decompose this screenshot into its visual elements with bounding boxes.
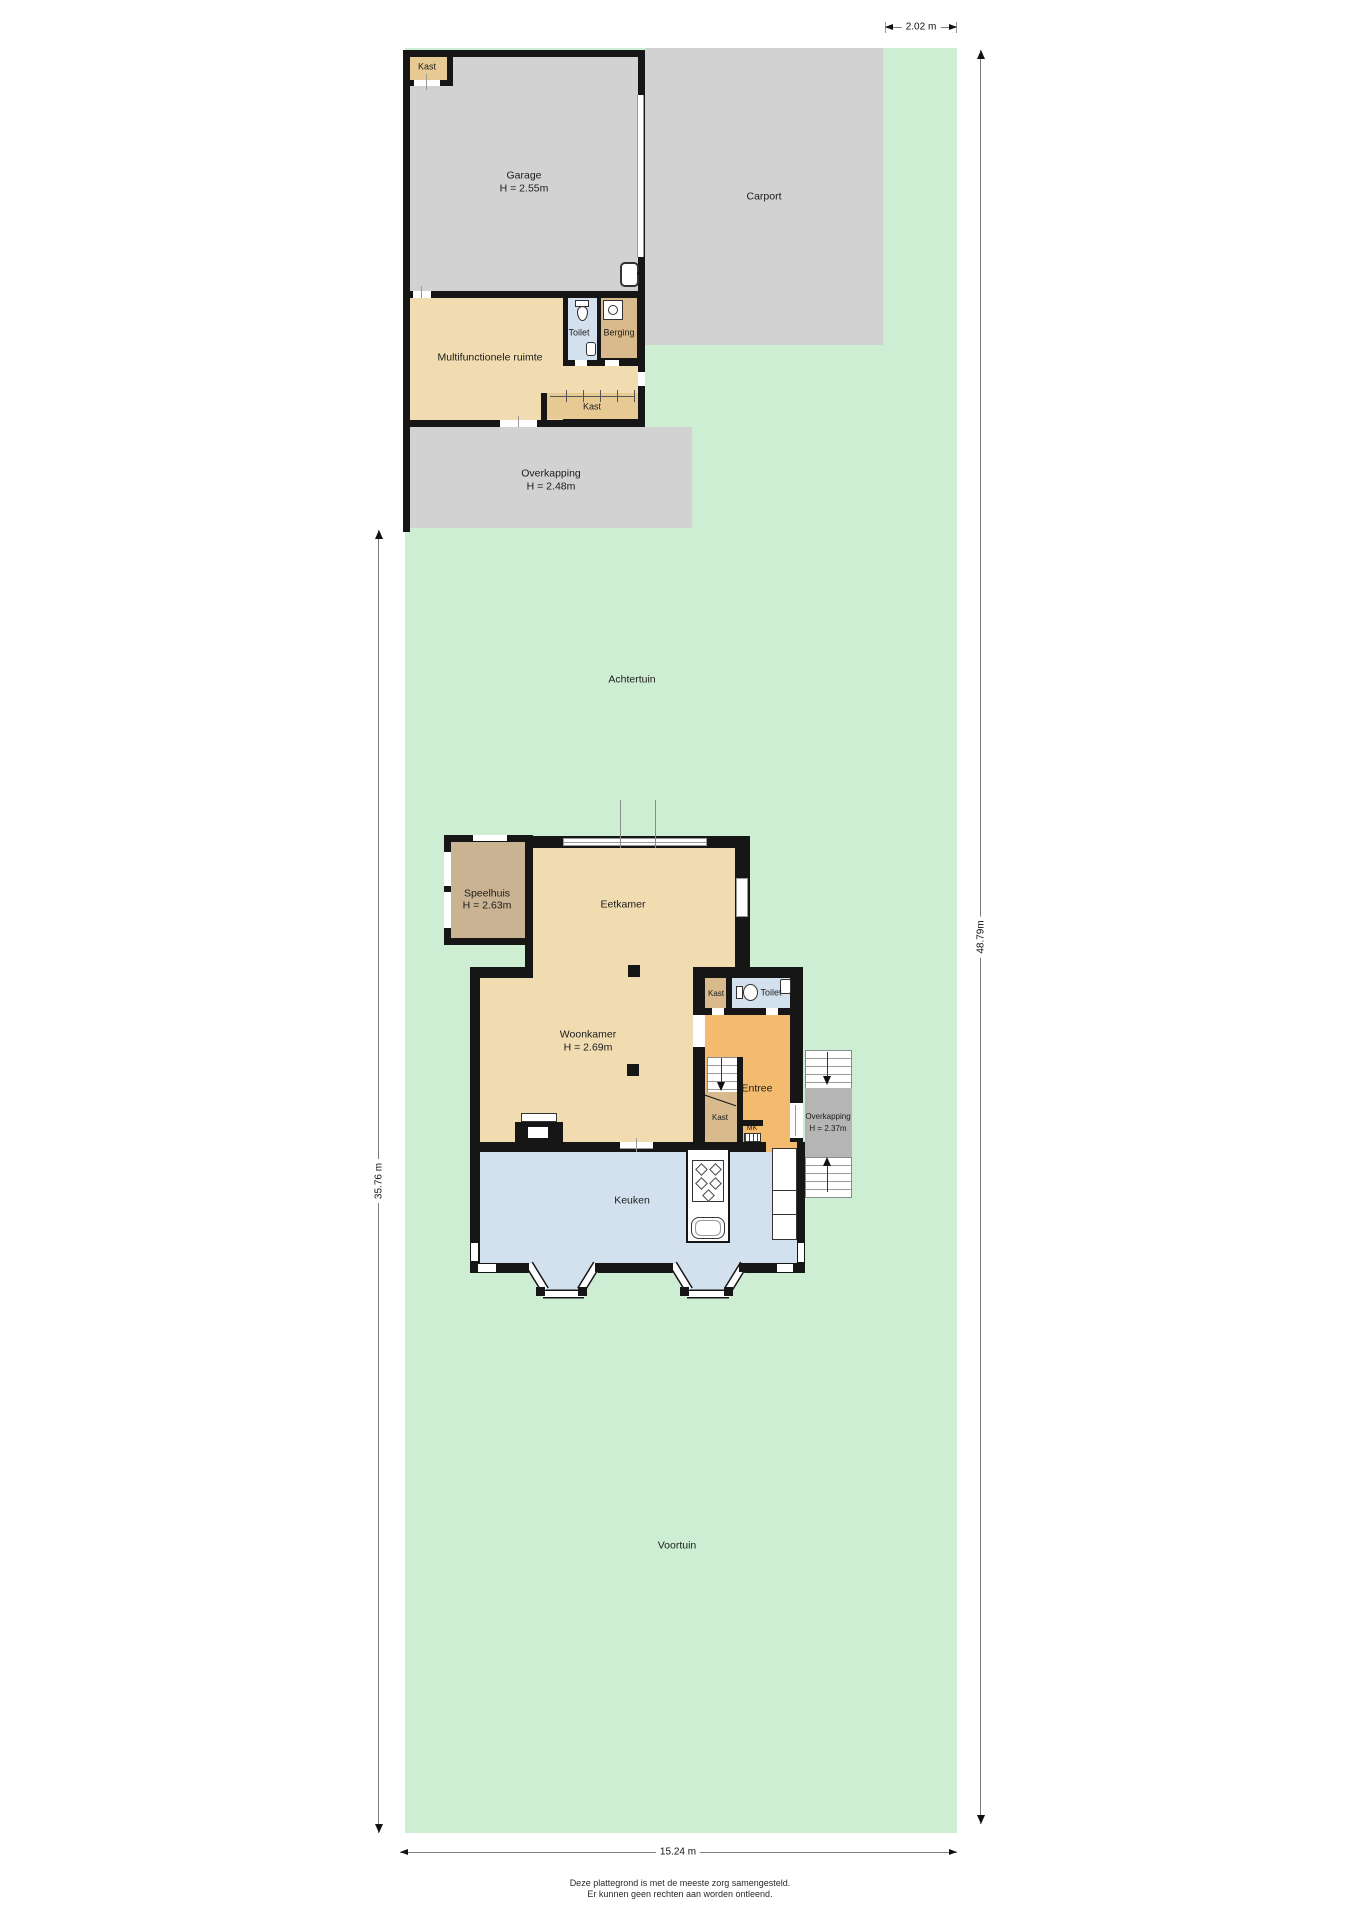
fireplace-hearth (528, 1127, 548, 1138)
overkapping-north-label: Overkapping (521, 468, 581, 481)
dimension-bottom-value: 15.24 m (656, 1847, 700, 1858)
garage-kast-door-mark (426, 74, 427, 90)
awning-line-2 (655, 800, 656, 848)
bay-windows (470, 1258, 810, 1305)
dimension-bottom-arrow-right (949, 1849, 957, 1855)
garage-height-label: H = 2.55m (500, 183, 549, 196)
toilet-sink-icon (586, 342, 596, 356)
berging-label: Berging (603, 328, 634, 339)
counter-divider-1 (772, 1190, 797, 1191)
house-toilet-label: Toilet (760, 988, 781, 999)
woonkamer-entree-opening (693, 1015, 705, 1047)
garage-label: Garage (506, 170, 541, 183)
garage-kast-label: Kast (418, 62, 436, 73)
entry-overkapping-label: Overkapping (805, 1112, 850, 1122)
entry-steps-lower-stem (827, 1166, 828, 1192)
kast-rail-line (550, 396, 635, 397)
speelhuis-window-north (473, 835, 507, 841)
overkapping-north-height-label: H = 2.48m (527, 481, 576, 494)
speelhuis-label: Speelhuis (464, 888, 510, 901)
kitchen-sink-basin (695, 1220, 721, 1236)
multifunctional-room-label: Multifunctionele ruimte (437, 352, 542, 365)
house-toilet-tank-icon (736, 986, 743, 999)
disclaimer-line-1: Deze plattegrond is met de meeste zorg s… (570, 1878, 791, 1888)
pillar-2 (627, 1064, 639, 1076)
entry-steps-upper-stem (827, 1052, 828, 1076)
entry-steps-upper-arrow (823, 1076, 831, 1085)
front-door-opening (790, 1103, 803, 1138)
outbuilding-toilet-label: Toilet (568, 328, 589, 339)
dimension-left-value: 35.76 m (374, 1159, 385, 1203)
woonkamer-floor (480, 978, 693, 1142)
dimension-top-arrow-right (949, 24, 957, 30)
outbuilding-garden-opening (638, 372, 645, 386)
keuken-label: Keuken (614, 1195, 650, 1208)
kast-strip-label: Kast (583, 402, 601, 413)
woonkamer-height-label: H = 2.69m (564, 1042, 613, 1055)
mk-label: MK (747, 1125, 758, 1133)
voortuin-label: Voortuin (658, 1540, 697, 1553)
eetkamer-window-east (736, 878, 748, 917)
keuken-floor (480, 1152, 797, 1263)
stairs-direction-stem (721, 1058, 722, 1082)
house-toilet-sink-icon (780, 979, 791, 994)
eetkamer-window-centerline (564, 842, 706, 843)
woonkamer-label: Woonkamer (560, 1029, 616, 1042)
washer-drum-icon (608, 305, 618, 315)
speelhuis-window-west-2 (444, 892, 451, 928)
eetkamer-woonkamer-passage (533, 967, 693, 978)
entry-steps-lower-arrow (823, 1157, 831, 1166)
entry-overkapping-height-label: H = 2.37m (809, 1124, 846, 1134)
speelhuis-height-label: H = 2.63m (463, 900, 512, 913)
house-toilet-bowl-icon (743, 984, 758, 1001)
dimension-right-value: 48.79m (976, 916, 987, 957)
dimension-left-arrow-bottom (375, 1824, 383, 1833)
disclaimer-line-2: Er kunnen geen rechten aan worden ontlee… (587, 1889, 772, 1899)
stairs-direction-arrow (717, 1082, 725, 1091)
toilet-door-opening-house (766, 1008, 778, 1015)
counter-divider-2 (772, 1214, 797, 1215)
dimension-bottom-arrow-left (400, 1849, 408, 1855)
multifunctional-room-floor-east (563, 366, 638, 393)
garage-multiroom-door-opening (413, 291, 431, 298)
speelhuis-window-west-1 (444, 852, 451, 886)
pillar-1 (628, 965, 640, 977)
dimension-right-arrow-bottom (977, 1815, 985, 1824)
dimension-right-arrow-top (977, 50, 985, 59)
floorplan-canvas: Kast Garage H = 2.55m Carport Multifunct… (0, 0, 1358, 1920)
house-kast-label: Kast (708, 989, 724, 999)
kast-door-opening (712, 1008, 724, 1015)
eetkamer-label: Eetkamer (601, 899, 646, 912)
fireplace-mantel (521, 1113, 557, 1122)
west-wall-extension (403, 427, 410, 532)
mk-meter-box (744, 1133, 761, 1142)
dimension-left-arrow-top (375, 530, 383, 539)
entree-label: Entree (742, 1083, 773, 1096)
achtertuin-label: Achtertuin (608, 674, 655, 687)
woonkamer-keuken-slider-mark (636, 1138, 637, 1152)
awning-line-1 (620, 800, 621, 848)
garage-side-door-latch (637, 272, 642, 275)
dimension-top-value: 2.02 m (902, 22, 941, 33)
front-door-leaf (795, 1105, 796, 1136)
garage-kast-door-opening (414, 80, 440, 86)
understairs-kast-label: Kast (712, 1113, 728, 1123)
carport-label: Carport (746, 191, 781, 204)
kitchen-counter-column (772, 1148, 797, 1240)
stairs-wall-east (737, 1057, 743, 1142)
dimension-top-arrow-left (885, 24, 893, 30)
entry-overkapping-area (805, 1088, 852, 1157)
garage-carport-door-strip (637, 95, 644, 257)
